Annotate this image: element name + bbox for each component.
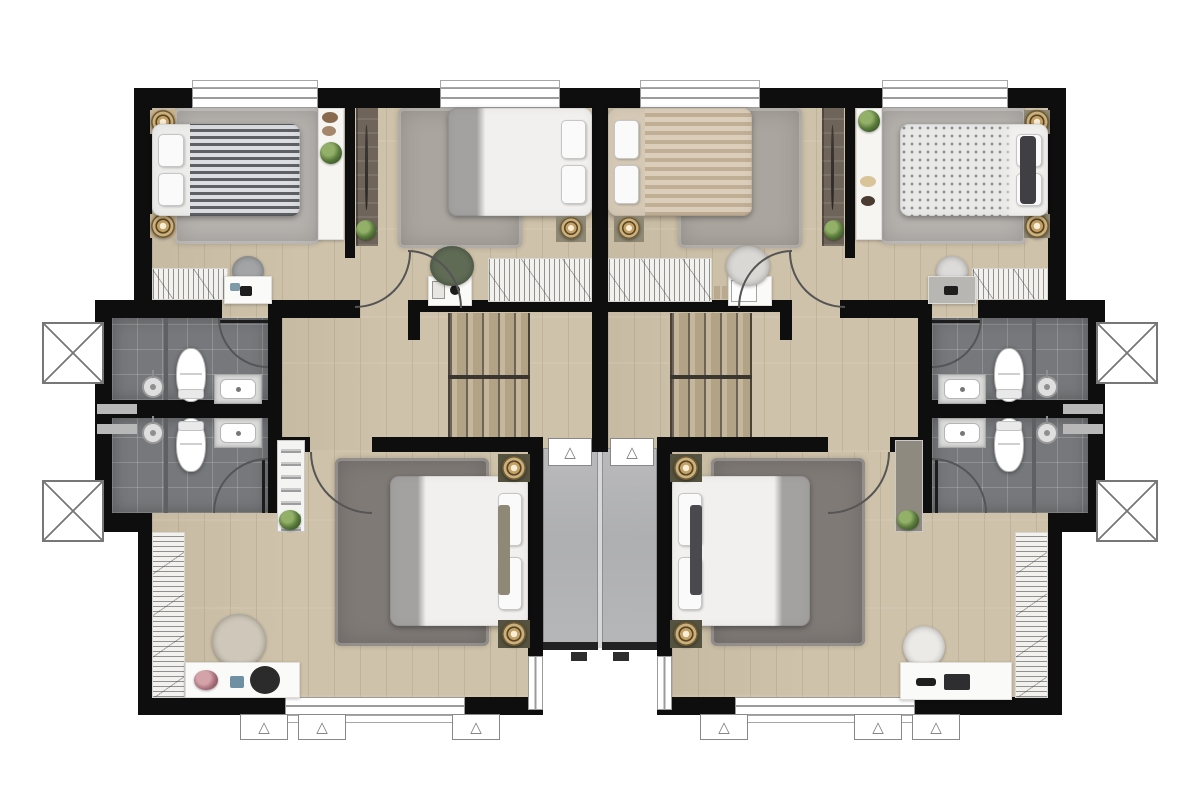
window-lightwell-right: [657, 656, 672, 710]
window-box-bath-upper-left: [42, 322, 104, 384]
lamp-bedroom2-left-bottom: [151, 214, 175, 238]
stairs-upper-run-right: [670, 313, 752, 375]
sink-vanity-upper-left: [214, 374, 262, 404]
toilet-upper-left: [176, 348, 206, 402]
threshold-left-1: [97, 404, 137, 414]
wall-bedroom2-west-right: [845, 88, 855, 258]
sink-vanity-upper-right: [938, 374, 986, 404]
cushion-master-left: [498, 505, 510, 595]
ac-unit-left: [571, 652, 587, 661]
lamp-master-left-bottom: [502, 622, 526, 646]
window-box-bath-upper-right: [1096, 322, 1158, 384]
awning-symbol-left-1: △: [240, 714, 288, 740]
floor-hall-stairs-left: [282, 318, 592, 452]
shower-screen-lower-left: [164, 418, 168, 513]
stairs-divider-right: [670, 375, 752, 379]
window-top-bedroom3-left: [440, 88, 560, 108]
lightwell-shaft-left: [543, 448, 598, 648]
wall-step-left-b: [268, 300, 360, 318]
stairs-lower-run-left: [448, 379, 530, 437]
shower-head-lower-right: [1036, 422, 1058, 444]
awning-symbol-right-2: △: [854, 714, 902, 740]
cushion-bedroom2-right: [1020, 136, 1036, 204]
wall-master-outer-left: [138, 513, 152, 715]
plant-closet-left: [356, 220, 376, 240]
wall-bedroom2-east-left: [345, 88, 355, 258]
threshold-right-2: [1063, 424, 1103, 434]
window-frame-top-4: [882, 80, 1008, 88]
plant-console-right: [858, 110, 880, 132]
lightwell-shaft-right: [602, 448, 657, 648]
window-top-bedroom3-right: [640, 88, 760, 108]
bed-bedroom2-left: [152, 124, 300, 216]
vent-hatch-lightwell-left: △: [548, 438, 592, 466]
window-frame-top-3: [640, 80, 760, 88]
awning-symbol-right-3: △: [912, 714, 960, 740]
sink-vanity-lower-left: [214, 418, 262, 448]
floorplan-image: △△△△△△△△: [0, 0, 1200, 800]
lamp-master-right-top: [674, 456, 698, 480]
sink-vanity-lower-right: [938, 418, 986, 448]
palette-desk-right: [944, 674, 970, 690]
desk-item-right-1: [944, 286, 958, 295]
wall-step-right-b: [840, 300, 932, 318]
stairs-divider-left: [448, 375, 530, 379]
wall-step-left-a: [95, 300, 222, 318]
wall-master-top-right-b: [657, 437, 828, 452]
shower-head-upper-right: [1036, 376, 1058, 398]
floor-hall-stairs-right: [608, 318, 918, 452]
ac-unit-right: [613, 652, 629, 661]
plant-console-left: [320, 142, 342, 164]
bowl-console-right-2: [861, 196, 875, 206]
flowers-table-left: [194, 670, 218, 690]
wardrobe-master-right: [1015, 532, 1048, 698]
armchair-master-left: [212, 614, 266, 668]
plant-shelf-left: [279, 510, 301, 530]
window-frame-top-1: [192, 80, 318, 88]
lamp-bedroom3-right: [618, 217, 640, 239]
lightwell-bottom-edge-right: [602, 642, 657, 650]
shower-head-lower-left: [142, 422, 164, 444]
stairs-upper-run-left: [448, 313, 530, 375]
wardrobe-bedroom3-left: [488, 258, 592, 302]
bed-bedroom3-left: [448, 108, 592, 216]
dresser-bedroom2-left: [152, 268, 228, 300]
wall-outer-right-upper: [1048, 88, 1066, 318]
hat-table-left: [250, 666, 280, 694]
desk-item-left-2: [230, 283, 240, 291]
awning-symbol-right-1: △: [700, 714, 748, 740]
threshold-left-2: [97, 424, 137, 434]
toilet-lower-left: [176, 418, 206, 472]
desk-item-left-1: [240, 286, 252, 296]
awning-symbol-left-2: △: [298, 714, 346, 740]
lamp-master-right-bottom: [674, 622, 698, 646]
wall-master-top-left-b: [372, 437, 543, 452]
bowl-console-left-1: [322, 112, 338, 123]
figurine-right-2: [722, 286, 728, 299]
window-box-bath-lower-left: [42, 480, 104, 542]
awning-symbol-left-3: △: [452, 714, 500, 740]
bowl-console-right-1: [860, 176, 876, 187]
window-bottom-master-right: [735, 697, 915, 715]
window-bottom-master-left: [285, 697, 465, 715]
vent-hatch-lightwell-right: △: [610, 438, 654, 466]
window-top-bedroom2-left: [192, 88, 318, 108]
window-box-bath-lower-right: [1096, 480, 1158, 542]
window-frame-top-2: [440, 80, 560, 88]
shower-screen-upper-left: [164, 318, 168, 400]
wall-step-right-a: [978, 300, 1105, 318]
cushion-master-right: [690, 505, 702, 595]
threshold-right-1: [1063, 404, 1103, 414]
note-table-left: [230, 676, 244, 688]
wardrobe-bedroom3-right: [608, 258, 712, 302]
brush-desk-right: [916, 678, 936, 686]
window-lightwell-left: [528, 656, 543, 710]
figurine-right-1: [714, 286, 720, 299]
dresser-bedroom2-right: [972, 268, 1048, 300]
lamp-bedroom2-right-bottom: [1025, 214, 1049, 238]
bowl-console-left-2: [322, 126, 336, 136]
window-top-bedroom2-right: [882, 88, 1008, 108]
plant-shelf-right: [897, 510, 919, 530]
wall-party-center: [592, 88, 608, 452]
lightwell-gap-line: [598, 448, 602, 648]
wardrobe-master-left: [152, 532, 185, 698]
toilet-lower-right: [994, 418, 1024, 472]
lamp-master-left-top: [502, 456, 526, 480]
lamp-bedroom3-left: [560, 217, 582, 239]
stairs-lower-run-right: [670, 379, 752, 437]
plant-closet-right: [824, 220, 844, 240]
wall-master-outer-right: [1048, 513, 1062, 715]
toilet-upper-right: [994, 348, 1024, 402]
shower-head-upper-left: [142, 376, 164, 398]
lightwell-bottom-edge-left: [543, 642, 598, 650]
bed-bedroom3-right: [608, 108, 752, 216]
